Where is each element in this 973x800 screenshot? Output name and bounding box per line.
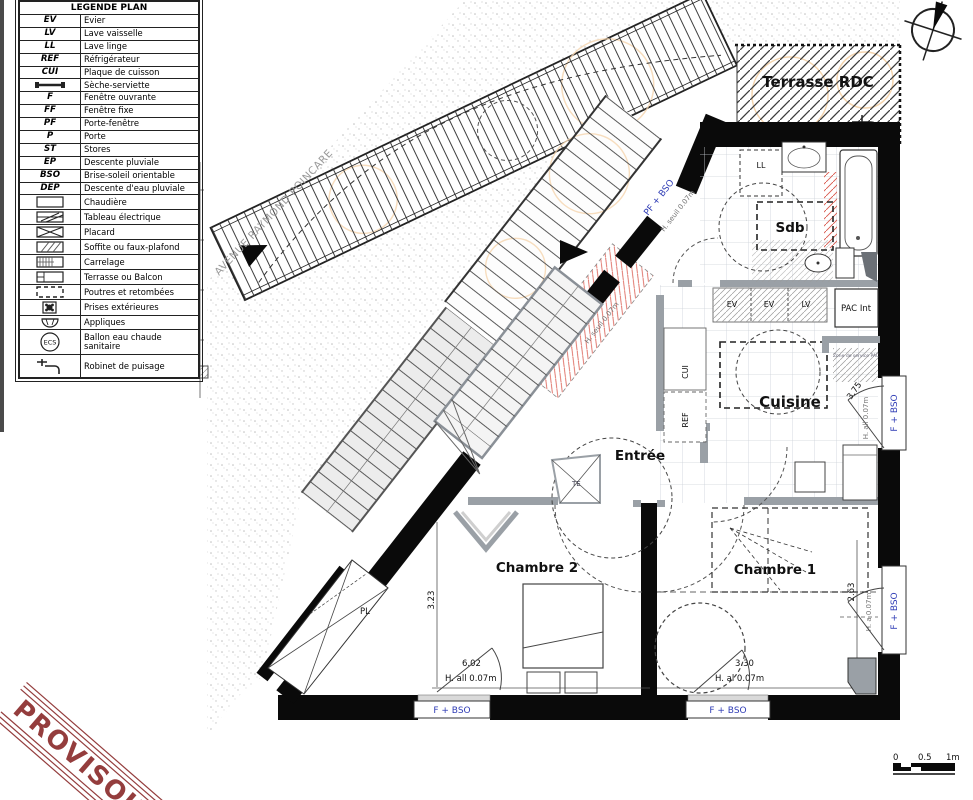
window-label: F + BSO (433, 706, 470, 716)
legend-row: Robinet de puisage (20, 355, 199, 378)
legend-label: Porte (81, 131, 199, 144)
legend-row: EPDescente pluviale (20, 156, 199, 169)
legend-abbr: ST (20, 143, 81, 156)
legend-label: Prises extérieures (81, 300, 199, 316)
red-hatch-strip (824, 172, 837, 248)
legend-label: Carrelage (81, 255, 199, 270)
dim-ch1-sill: H. al 0.07m (715, 674, 764, 684)
chaudiere-icon (32, 196, 68, 208)
placard-label: PL (360, 607, 370, 617)
legend-row: Tableau électrique (20, 210, 199, 225)
legend-panel: LEGENDE PLAN EVEvier LVLave vaisselle LL… (18, 0, 200, 379)
scale-zero: 0 (893, 753, 898, 763)
bedroom2-label: Chambre 2 (496, 560, 578, 576)
legend-row: Appliques (20, 316, 199, 330)
legend-label: Lave vaisselle (81, 27, 199, 40)
corner-detail (848, 658, 876, 694)
legend-abbr: PF (20, 118, 81, 131)
bedroom1-label: Chambre 1 (734, 562, 816, 578)
legend-row: LLLave linge (20, 40, 199, 53)
legend-row: PPorte (20, 131, 199, 144)
pac-label: PAC Int (841, 304, 872, 314)
poutres-icon (32, 286, 68, 298)
legend-row: EVEvier (20, 15, 199, 28)
dim-kitchen-sill: H. all 0.07m (862, 397, 870, 440)
robinet-icon (32, 356, 68, 376)
prises-icon (32, 301, 68, 314)
legend-label: Soffite ou faux-plafond (81, 240, 199, 255)
legend-label: Sèche-serviette (81, 79, 199, 92)
dishwasher-label: LV (801, 300, 811, 309)
scale-one: 1m (946, 753, 960, 763)
legend-label: Evier (81, 15, 199, 28)
legend-row: Prises extérieures (20, 300, 199, 316)
svg-text:ECS: ECS (44, 339, 57, 347)
legend-row: CUIPlaque de cuisson (20, 66, 199, 79)
legend-label: Descente d'eau pluviale (81, 182, 199, 195)
legend-abbr: FF (20, 105, 81, 118)
legend-abbr: REF (20, 53, 81, 66)
page-edge-strip (0, 0, 4, 432)
fridge-label: REF (681, 412, 690, 428)
electrical-closet: TE (552, 455, 600, 503)
legend-label: Poutres et retombées (81, 285, 199, 300)
sink2-label: EV (764, 300, 775, 309)
legend-row: BSOBrise-soleil orientable (20, 169, 199, 182)
legend-row: Placard (20, 225, 199, 240)
legend-table: LEGENDE PLAN EVEvier LVLave vaisselle LL… (19, 1, 199, 378)
window-label: F + BSO (890, 592, 900, 629)
window-label: F + BSO (709, 706, 746, 716)
legend-label: Terrasse ou Balcon (81, 270, 199, 285)
legend-abbr: BSO (20, 169, 81, 182)
bathroom-label: Sdb (775, 220, 804, 236)
legend-row: Chaudière (20, 195, 199, 210)
entry-label: Entrée (615, 448, 665, 464)
sink1-label: EV (727, 300, 738, 309)
pac-zone-label: Zone de service PAC (833, 353, 879, 359)
terrasse-label: Terrasse RDC (762, 73, 874, 91)
legend-row: FFFenêtre fixe (20, 105, 199, 118)
bathtub (840, 150, 877, 256)
bedroom-partition-wall (641, 503, 657, 695)
legend-label: Fenêtre ouvrante (81, 92, 199, 105)
legend-label: Brise-soleil orientable (81, 169, 199, 182)
legend-label: Robinet de puisage (81, 355, 199, 378)
dim-ch2-depth: 3.23 (427, 591, 437, 610)
legend-title: LEGENDE PLAN (20, 2, 199, 15)
legend-row: DEPDescente d'eau pluviale (20, 182, 199, 195)
legend-label: Stores (81, 143, 199, 156)
legend-label: Placard (81, 225, 199, 240)
tableau-electrique-icon (32, 211, 68, 223)
placard-icon (32, 226, 68, 238)
legend-label: Appliques (81, 316, 199, 330)
legend-row: ECSBallon eau chaude sanitaire (20, 330, 199, 355)
legend-label: Chaudière (81, 195, 199, 210)
electrical-panel-label: TE (571, 480, 581, 488)
legend-label: Plaque de cuisson (81, 66, 199, 79)
legend-abbr: DEP (20, 182, 81, 195)
washing-machine-label: LL (757, 161, 766, 170)
legend-label: Réfrigérateur (81, 53, 199, 66)
ecs-icon: ECS (32, 331, 68, 353)
legend-row: PFPorte-fenêtre (20, 118, 199, 131)
scale-half: 0.5 (918, 753, 932, 763)
kitchen-label: Cuisine (759, 393, 821, 411)
seche-serviette-icon (32, 80, 68, 90)
legend-label: Descente pluviale (81, 156, 199, 169)
legend-label: Porte-fenêtre (81, 118, 199, 131)
legend-abbr: F (20, 92, 81, 105)
cooktop-label: CUI (681, 365, 690, 379)
legend-row: Carrelage (20, 255, 199, 270)
window-label: F + BSO (890, 394, 900, 431)
soffite-icon (32, 241, 68, 253)
legend-abbr: P (20, 131, 81, 144)
legend-row: FFenêtre ouvrante (20, 92, 199, 105)
legend-row: STStores (20, 143, 199, 156)
legend-row: LVLave vaisselle (20, 27, 199, 40)
washbasin (782, 142, 826, 172)
legend-label: Fenêtre fixe (81, 105, 199, 118)
dim-ch1-width: 3.30 (735, 659, 754, 669)
legend-abbr: EV (20, 15, 81, 28)
legend-abbr: CUI (20, 66, 81, 79)
legend-row: Soffite ou faux-plafond (20, 240, 199, 255)
legend-abbr: LV (20, 27, 81, 40)
legend-row: Terrasse ou Balcon (20, 270, 199, 285)
legend-abbr: LL (20, 40, 81, 53)
legend-row: Poutres et retombées (20, 285, 199, 300)
legend-row: Sèche-serviette (20, 79, 199, 92)
legend-label: Lave linge (81, 40, 199, 53)
appliques-icon (32, 317, 68, 328)
legend-abbr: EP (20, 156, 81, 169)
terrasse-icon (32, 271, 68, 283)
legend-row: REFRéfrigérateur (20, 53, 199, 66)
floor-plan-page: Terrasse RDC PL (0, 0, 973, 800)
carrelage-icon (32, 256, 68, 268)
legend-label: Ballon eau chaude sanitaire (81, 330, 199, 355)
legend-label: Tableau électrique (81, 210, 199, 225)
